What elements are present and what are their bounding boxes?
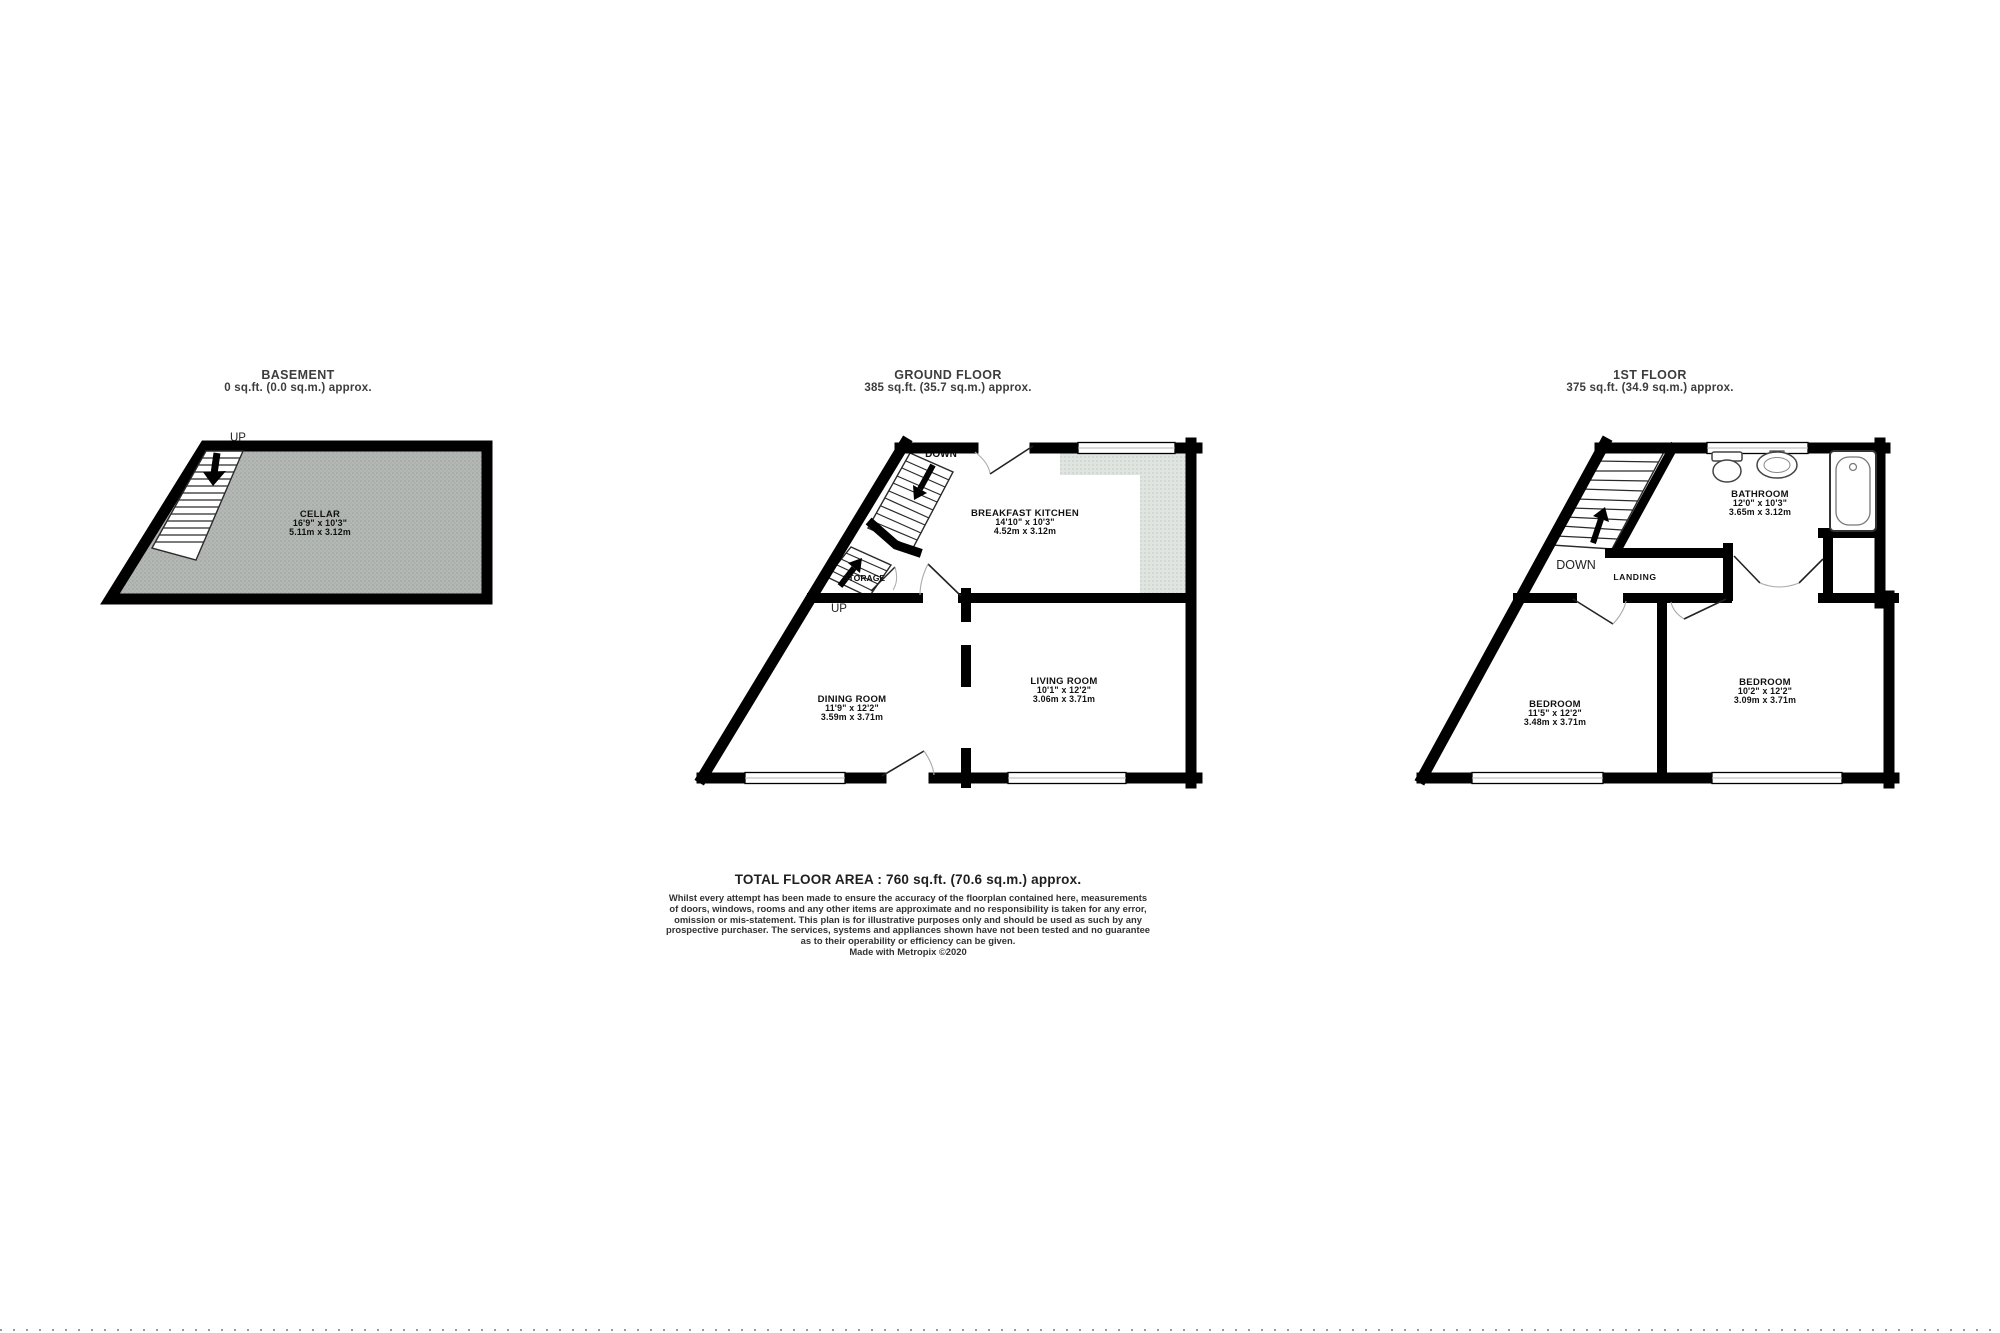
storage-label: STORAGE — [843, 573, 886, 583]
bedroom1-window — [1472, 773, 1603, 784]
floorplan-canvas: UP CELLAR 16'9" x 10'3" 5.11m x 3.12m — [0, 0, 2000, 1333]
basement-plan: UP CELLAR 16'9" x 10'3" 5.11m x 3.12m — [110, 432, 487, 599]
living-dim-metric: 3.06m x 3.71m — [1033, 694, 1095, 704]
total-floor-area: TOTAL FLOOR AREA : 760 sq.ft. (70.6 sq.m… — [666, 872, 1150, 887]
disclaimer-line: of doors, windows, rooms and any other i… — [666, 904, 1150, 915]
bedroom2-label: BEDROOM 10'2" x 12'2" 3.09m x 3.71m — [1734, 677, 1796, 705]
living-room-label: LIVING ROOM 10'1" x 12'2" 3.06m x 3.71m — [1030, 676, 1097, 704]
landing-label: LANDING — [1613, 572, 1656, 582]
page-break-dotted-line — [0, 1329, 2000, 1331]
kitchen-dim-metric: 4.52m x 3.12m — [994, 526, 1056, 536]
bedroom2-window — [1712, 773, 1842, 784]
bedroom1-door — [1573, 599, 1626, 624]
basement-up-label: UP — [230, 432, 246, 444]
kitchen-window — [1078, 443, 1175, 454]
first-floor-plan: DOWN LANDING BATHROOM 12'0" x 10'3" 3.65… — [1422, 443, 1894, 784]
kitchen-counter — [1060, 450, 1186, 593]
ground-up-label: UP — [831, 603, 847, 615]
disclaimer: Whilst every attempt has been made to en… — [666, 893, 1150, 947]
cellar-dim-metric: 5.11m x 3.12m — [289, 527, 351, 537]
metropix-credit: Made with Metropix ©2020 — [666, 947, 1150, 958]
front-door — [882, 751, 934, 776]
ground-floor-plan: DOWN — [702, 443, 1197, 784]
sink-icon — [1757, 451, 1797, 478]
toilet-icon — [1712, 452, 1742, 482]
dining-dim-metric: 3.59m x 3.71m — [821, 712, 883, 722]
first-floor-walls — [1422, 443, 1894, 783]
footer: TOTAL FLOOR AREA : 760 sq.ft. (70.6 sq.m… — [666, 872, 1150, 958]
kitchen-rear-door — [975, 446, 1033, 474]
ground-floor-walls — [702, 443, 1197, 783]
dining-room-window — [745, 773, 845, 784]
breakfast-kitchen-label: BREAKFAST KITCHEN 14'10" x 10'3" 4.52m x… — [971, 508, 1079, 536]
bedroom1-label: BEDROOM 11'5" x 12'2" 3.48m x 3.71m — [1524, 699, 1586, 727]
living-room-window — [1008, 773, 1126, 784]
bathroom-door — [1734, 556, 1779, 587]
ground-floor-windows — [745, 443, 1175, 784]
landing-cupboard-door — [1779, 559, 1823, 587]
floorplan-page: BASEMENT 0 sq.ft. (0.0 sq.m.) approx. GR… — [0, 0, 2000, 1333]
bedroom2-dim-metric: 3.09m x 3.71m — [1734, 695, 1796, 705]
dining-room-label: DINING ROOM 11'9" x 12'2" 3.59m x 3.71m — [818, 694, 887, 722]
bathroom-label: BATHROOM 12'0" x 10'3" 3.65m x 3.12m — [1729, 489, 1791, 517]
kitchen-dining-door — [920, 564, 961, 596]
first-down-label: DOWN — [1556, 558, 1596, 572]
first-floor-doors — [1573, 556, 1823, 624]
bedroom1-dim-metric: 3.48m x 3.71m — [1524, 717, 1586, 727]
bathtub-icon — [1830, 451, 1876, 531]
bathroom-dim-metric: 3.65m x 3.12m — [1729, 507, 1791, 517]
